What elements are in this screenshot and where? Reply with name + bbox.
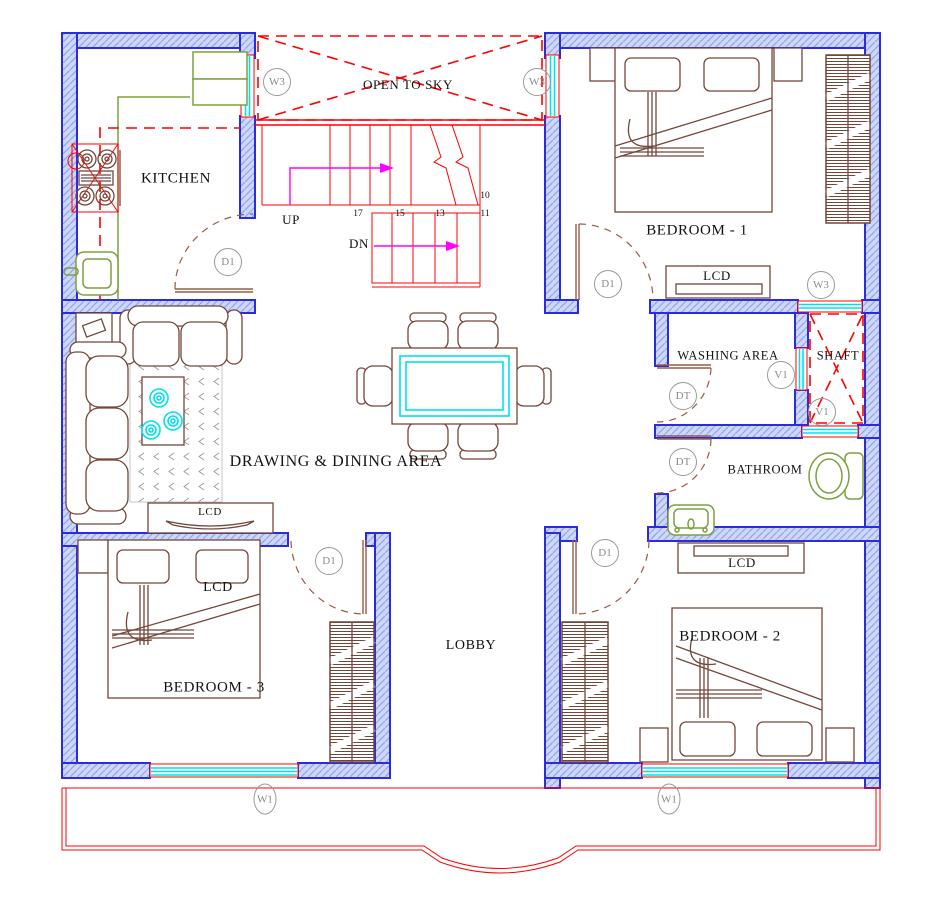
shaft-top-window-w3 [798, 301, 862, 312]
d1-marker-bedroom3: D1 [315, 547, 343, 575]
dining-table [392, 348, 517, 424]
d1-marker-bedroom1: D1 [594, 270, 622, 298]
room-label-bedroom2: BEDROOM - 2 [679, 629, 781, 646]
balcony-outline [62, 788, 880, 873]
riser-number-13: 13 [435, 209, 445, 219]
riser-number-17: 17 [353, 209, 363, 219]
w1-marker-bedroom3: W1 [254, 784, 277, 815]
w1-marker-bedroom2: W1 [658, 784, 681, 815]
w3-marker-open-to-sky-left: W3 [263, 68, 291, 96]
break-line [430, 125, 456, 205]
room-label-kitchen: KITCHEN [141, 171, 211, 188]
plan-linework [0, 0, 942, 900]
riser-number-15: 15 [395, 209, 405, 219]
riser-number-10: 10 [480, 191, 490, 201]
floor-plan: KITCHEN OPEN TO SKY BEDROOM - 1 WASHING … [0, 0, 942, 900]
dt-marker-bathroom: DT [669, 448, 697, 476]
wardrobe-bedroom3 [330, 622, 374, 762]
up-arrow [290, 163, 394, 205]
bed-1 [590, 48, 802, 212]
room-label-washing-area: WASHING AREA [677, 349, 778, 364]
room-label-drawing-dining: DRAWING & DINING AREA [230, 453, 443, 471]
break-line [452, 125, 478, 205]
lcd-label-drawing: LCD [198, 506, 222, 518]
d1-marker-bedroom2: D1 [591, 539, 619, 567]
w3-marker-bedroom1: W3 [807, 271, 835, 299]
shaft-bottom-window-v1 [802, 426, 858, 437]
room-label-open-to-sky: OPEN TO SKY [363, 77, 453, 93]
washing-vent-v1 [796, 348, 807, 390]
wardrobe-bedroom2 [562, 622, 608, 762]
stairs-down-label: DN [349, 236, 369, 252]
riser-number-11: 11 [480, 209, 489, 219]
wardrobe-bedroom1 [826, 55, 870, 223]
toilet [809, 453, 863, 499]
stairs-up-label: UP [282, 212, 300, 228]
down-arrow [374, 241, 460, 251]
room-label-bedroom1: BEDROOM - 1 [646, 223, 748, 240]
v1-marker-shaft: V1 [808, 398, 836, 426]
lcd-label-bedroom3: LCD [203, 580, 233, 596]
room-label-lobby: LOBBY [446, 638, 496, 654]
room-label-bathroom: BATHROOM [728, 463, 803, 478]
door-kitchen-d1 [175, 214, 253, 292]
room-label-bedroom3: BEDROOM - 3 [163, 680, 265, 697]
washbasin [668, 505, 714, 535]
bedroom3-window-w1 [150, 764, 298, 777]
coffee-table [142, 377, 184, 445]
d1-marker-kitchen: D1 [214, 248, 242, 276]
lcd-label-bedroom1: LCD [703, 268, 731, 284]
v1-marker-washing: V1 [767, 361, 795, 389]
dt-marker-washing: DT [669, 382, 697, 410]
w3-marker-open-to-sky-right: W3 [523, 68, 551, 96]
bedroom2-window-w1 [642, 764, 788, 777]
staircase [262, 125, 480, 287]
room-label-shaft: SHAFT [817, 349, 860, 364]
kitchen-cabinet [193, 52, 247, 105]
bed-3 [78, 540, 260, 698]
lcd-label-bedroom2: LCD [728, 555, 756, 571]
